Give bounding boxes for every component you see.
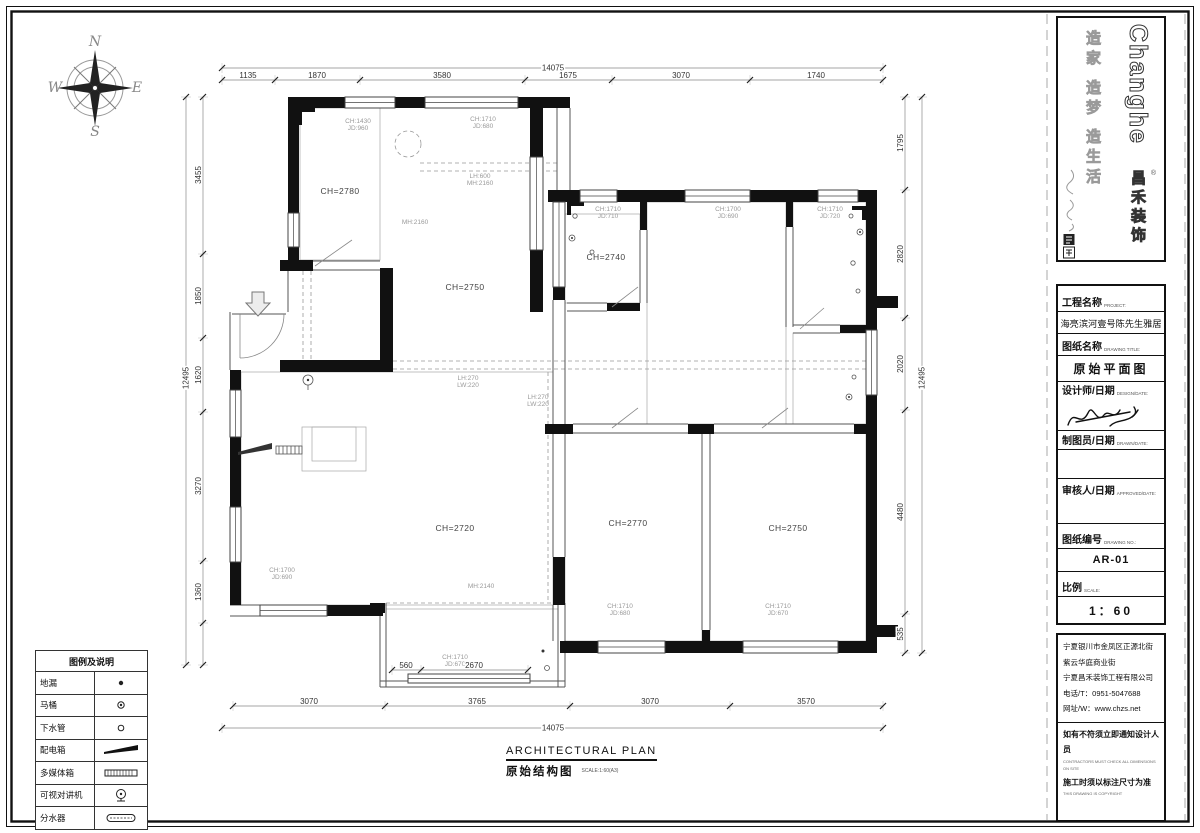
multimedia-box-icon	[276, 446, 302, 454]
distribution-box-icon	[238, 443, 272, 455]
dim-label: 1740	[807, 71, 825, 80]
dim-label: 3570	[797, 697, 815, 706]
plan-annotation: LH:600MH:2160	[467, 173, 494, 187]
legend-label: 多媒体箱	[36, 762, 94, 784]
dim-label: 3580	[433, 71, 451, 80]
legend-table: 图例及说明 地漏 马桶 下水管 配电箱 多媒体箱	[35, 650, 148, 830]
legend-row: 地漏	[36, 672, 147, 695]
note-en: THIS DRAWING IS COPYRIGHT	[1063, 790, 1159, 797]
row-label: 审核人/日期	[1062, 482, 1115, 497]
dim-label: 1360	[194, 583, 203, 601]
dim-label: 1675	[559, 71, 577, 80]
row-label: 图纸名称	[1062, 338, 1102, 353]
compass-east-label: E	[131, 80, 142, 96]
row-label: 图纸编号	[1062, 531, 1102, 546]
designer-label-row: 设计师/日期 DESIGN/DATE:	[1058, 382, 1164, 399]
drawing-caption: ARCHITECTURAL PLAN 原始结构图 SCALE:1:60(A3)	[506, 741, 657, 779]
plan-annotation: MH:2160	[402, 219, 429, 226]
toilet-icon	[94, 695, 147, 717]
logo-block: Changhe 昌禾装饰 ® 造家 造梦 造生活	[1056, 16, 1166, 262]
legend-label: 配电箱	[36, 740, 94, 762]
row-label-en: SCALE:	[1084, 588, 1100, 593]
compass-south-label: S	[90, 124, 100, 140]
compass-rose: N E S W	[48, 34, 142, 140]
plan-annotation: CH:1700JD:690	[715, 206, 741, 220]
project-value: 海亮滨河壹号陈先生雅居	[1058, 312, 1164, 334]
drain-pipe-icon	[94, 717, 147, 739]
legend-row: 下水管	[36, 717, 147, 740]
room-label: CH=2750	[446, 282, 485, 292]
designer-signature	[1058, 399, 1164, 431]
row-label-en: APPROVED/DATE:	[1117, 491, 1156, 496]
multimedia-box-icon	[94, 762, 147, 784]
legend-row: 马桶	[36, 695, 147, 718]
title-block: 工程名称 PROJECT: 海亮滨河壹号陈先生雅居 图纸名称 DRAWING T…	[1056, 284, 1166, 625]
compass-north-label: N	[88, 34, 102, 50]
room-label: CH=2780	[321, 186, 360, 196]
scale-value: 1：60	[1058, 597, 1164, 623]
plan-annotation: LH:270LW:220	[527, 394, 549, 408]
legend-row: 可视对讲机	[36, 785, 147, 808]
dim-label: 12495	[182, 366, 191, 389]
caption-title-cn: 原始结构图	[506, 763, 574, 779]
legend-label: 地漏	[36, 672, 94, 694]
plan-annotation: CH:1710JD:720	[817, 206, 843, 220]
drawing-title-value: 原始平面图	[1058, 356, 1164, 382]
address-line: 宁夏银川市金凤区正源北街	[1063, 639, 1159, 655]
row-label-en: PROJECT:	[1104, 303, 1126, 308]
dim-label: 560	[399, 661, 413, 670]
plan-annotation: CH:1700JD:690	[269, 567, 295, 581]
dim-label: 1620	[194, 366, 203, 384]
drawing-no-value: AR-01	[1058, 549, 1164, 572]
legend-label: 马桶	[36, 695, 94, 717]
signature-scribble	[1058, 399, 1162, 431]
row-label-en: DRAWN/DATE:	[1117, 441, 1148, 446]
dim-label: 3455	[194, 166, 203, 184]
drawing-title-label-row: 图纸名称 DRAWING TITLE:	[1058, 334, 1164, 356]
row-label: 设计师/日期	[1062, 382, 1115, 397]
scale-label-row: 比例 SCALE:	[1058, 572, 1164, 597]
fixtures	[238, 214, 863, 671]
caption-title-en: ARCHITECTURAL PLAN	[506, 745, 657, 761]
legend-title: 图例及说明	[36, 651, 147, 672]
note-cn: 如有不符须立即通知设计人员	[1063, 727, 1159, 758]
dim-label: 4480	[896, 503, 905, 521]
website-line: 网址/W：www.chzs.net	[1063, 701, 1159, 717]
legend-row: 配电箱	[36, 740, 147, 763]
dim-label: 1795	[896, 134, 905, 152]
legend-label: 可视对讲机	[36, 785, 94, 807]
dim-label: 2020	[896, 355, 905, 373]
dim-label: 3070	[300, 697, 318, 706]
floor-drain-icon	[94, 672, 147, 694]
legend-label: 下水管	[36, 717, 94, 739]
dim-label: 1870	[308, 71, 326, 80]
row-label-en: DRAWING NO.:	[1104, 540, 1136, 545]
address-line: 紫云华庭商业街	[1063, 655, 1159, 671]
phone-line: 电话/T：0951-5047688	[1063, 686, 1159, 702]
room-label: CH=2720	[436, 523, 475, 533]
approver-label-row: 审核人/日期 APPROVED/DATE:	[1058, 479, 1164, 499]
walls	[230, 97, 898, 653]
registered-mark: ®	[1151, 170, 1156, 177]
legend-row: 多媒体箱	[36, 762, 147, 785]
floor-plan-canvas: N E S W	[0, 0, 1200, 833]
distribution-box-icon	[94, 740, 147, 762]
row-label-en: DESIGN/DATE:	[1117, 391, 1148, 396]
dim-label: 14075	[542, 724, 565, 733]
approver-value-empty	[1058, 499, 1164, 524]
dim-label: 3270	[194, 477, 203, 495]
divider	[1058, 722, 1164, 723]
row-label-en: DRAWING TITLE:	[1104, 347, 1140, 352]
note-en: CONTRACTORS MUST CHECK ALL DIMENSIONS ON…	[1063, 758, 1159, 772]
plan-annotation: CH:1710JD:710	[595, 206, 621, 220]
drafter-value-empty	[1058, 450, 1164, 479]
drafter-label-row: 制图员/日期 DRAWN/DATE:	[1058, 431, 1164, 450]
dim-label: 12495	[918, 366, 927, 389]
row-label: 工程名称	[1062, 294, 1102, 309]
address-block: 宁夏银川市金凤区正源北街 紫云华庭商业街 宁夏昌禾装饰工程有限公司 电话/T：0…	[1056, 633, 1166, 822]
plan-annotation: LH:270LW:220	[457, 375, 479, 389]
dim-label: 3070	[672, 71, 690, 80]
room-label: CH=2770	[609, 518, 648, 528]
caption-scale: SCALE:1:60(A3)	[582, 768, 619, 774]
water-manifold-icon	[94, 807, 147, 829]
drawing-sheet: N E S W	[0, 0, 1200, 833]
drawing-no-label-row: 图纸编号 DRAWING NO.:	[1058, 524, 1164, 549]
row-label: 比例	[1062, 579, 1082, 594]
dim-label: 1850	[194, 287, 203, 305]
dim-label: 1135	[239, 71, 257, 80]
dim-label: 2820	[896, 245, 905, 263]
entry-arrow-icon	[246, 292, 270, 316]
dim-label: 3070	[641, 697, 659, 706]
video-intercom-icon	[94, 785, 147, 807]
row-label: 制图员/日期	[1062, 432, 1115, 447]
brand-logo-cn: 昌禾装饰	[1127, 170, 1148, 246]
calligraphy-signature	[1060, 166, 1082, 260]
plan-annotation: CH:1710JD:680	[607, 603, 633, 617]
plan-annotation: CH:1430JD:960	[345, 118, 371, 132]
room-label: CH=2740	[587, 252, 626, 262]
dim-label: 3765	[468, 697, 486, 706]
brand-slogan: 造家 造梦 造生活	[1082, 30, 1103, 188]
legend-row: 分水器	[36, 807, 147, 829]
legend-label: 分水器	[36, 807, 94, 829]
plan-annotation: MH:2140	[468, 583, 495, 590]
plan-annotation: CH:1710JD:680	[470, 116, 496, 130]
dim-label: 535	[896, 627, 905, 641]
plan-annotation: CH:1710JD:670	[765, 603, 791, 617]
project-label-row: 工程名称 PROJECT:	[1058, 286, 1164, 312]
note-cn: 施工时须以标注尺寸为准	[1063, 775, 1159, 791]
compass-west-label: W	[48, 80, 64, 96]
address-line: 宁夏昌禾装饰工程有限公司	[1063, 670, 1159, 686]
room-label: CH=2750	[769, 523, 808, 533]
video-intercom-icon	[303, 375, 313, 390]
sheet-border	[7, 7, 1194, 827]
dim-label: 2670	[465, 661, 483, 670]
brand-logo-en: Changhe	[1123, 24, 1152, 145]
